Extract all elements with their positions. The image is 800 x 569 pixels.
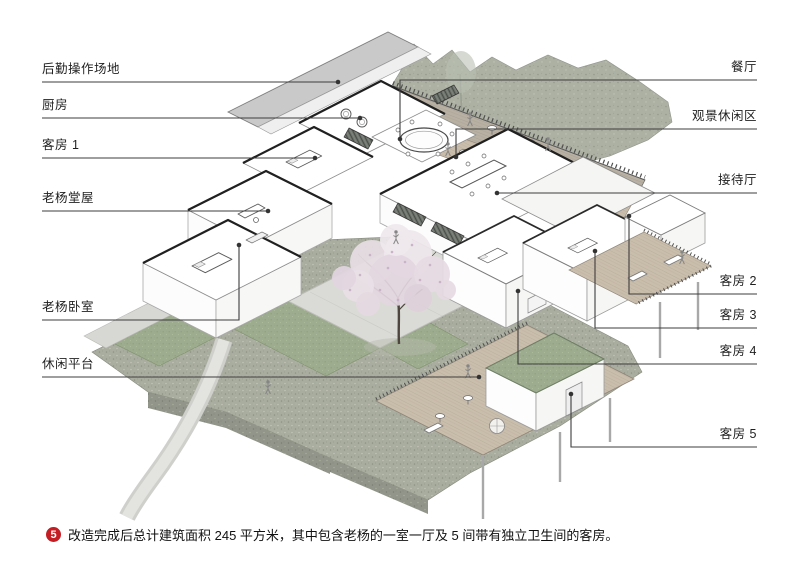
round-dining-table <box>400 128 448 152</box>
label-reception-hall: 接待厅 <box>718 172 757 188</box>
label-viewing-lounge-area: 观景休闲区 <box>692 108 757 124</box>
label-laoyang-bedroom: 老杨卧室 <box>42 299 94 315</box>
figure-badge: 5 <box>46 527 61 542</box>
figure-caption: 5 改造完成后总计建筑面积 245 平方米，其中包含老杨的一室一厅及 5 间带有… <box>46 525 618 544</box>
label-leisure-platform: 休闲平台 <box>42 356 94 372</box>
axonometric-drawing <box>0 0 800 569</box>
label-guest-room-4: 客房 4 <box>720 343 757 359</box>
label-laoyang-hall: 老杨堂屋 <box>42 190 94 206</box>
label-guest-room-3: 客房 3 <box>720 307 757 323</box>
label-dining-hall: 餐厅 <box>731 59 757 75</box>
label-kitchen: 厨房 <box>42 97 68 113</box>
label-back-of-house-area: 后勤操作场地 <box>42 61 120 77</box>
label-guest-room-1: 客房 1 <box>42 137 79 153</box>
figure-canvas: 后勤操作场地 厨房 客房 1 老杨堂屋 老杨卧室 休闲平台 餐厅 观景休闲区 接… <box>0 0 800 569</box>
label-guest-room-2: 客房 2 <box>720 273 757 289</box>
figure-caption-text: 改造完成后总计建筑面积 245 平方米，其中包含老杨的一室一厅及 5 间带有独立… <box>68 525 618 544</box>
label-guest-room-5: 客房 5 <box>720 426 757 442</box>
